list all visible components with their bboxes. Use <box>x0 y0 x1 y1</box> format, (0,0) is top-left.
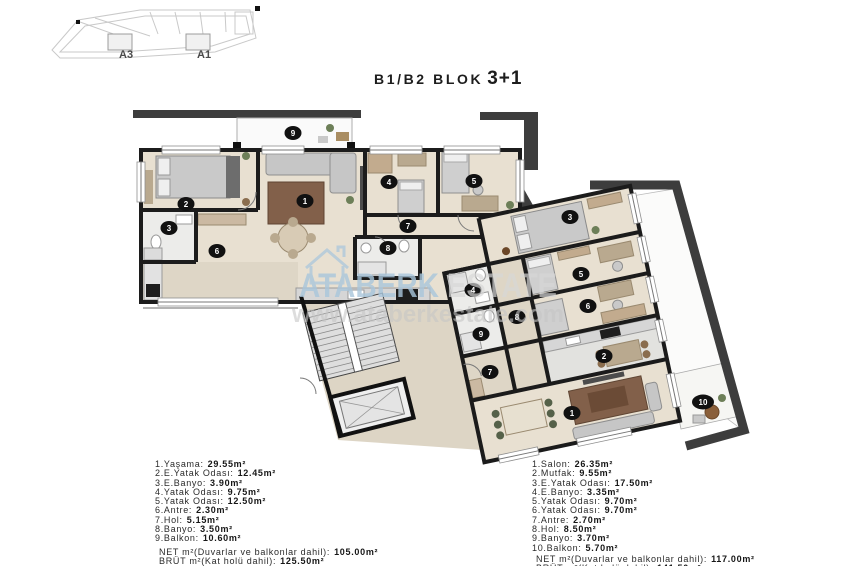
svg-text:6: 6 <box>215 247 220 256</box>
stair-door-arc <box>300 378 316 394</box>
svg-text:5: 5 <box>472 177 477 186</box>
room-label: 10.Balkon: <box>532 543 582 553</box>
badge-left-4: 4 <box>381 175 398 189</box>
svg-text:1: 1 <box>570 409 575 418</box>
svg-text:7: 7 <box>488 368 493 377</box>
badge-left-2: 2 <box>178 197 195 211</box>
left-hall-floor <box>143 262 298 302</box>
badge-left-7: 7 <box>400 219 417 233</box>
brut-value: 125.50m² <box>280 556 324 566</box>
left-room2-furniture <box>144 152 250 206</box>
brut-label: BRÜT m²(Kat holü dahil): <box>159 556 276 566</box>
svg-text:2: 2 <box>184 200 189 209</box>
room-area: 5.70m² <box>586 543 619 553</box>
badge-right-2: 2 <box>596 349 613 363</box>
net-value: 117.00m² <box>711 554 755 564</box>
net-value: 105.00m² <box>334 547 378 557</box>
badge-left-8: 8 <box>380 241 397 255</box>
site-label-a3: A3 <box>119 49 133 61</box>
badge-left-9: 9 <box>285 126 302 140</box>
svg-text:9: 9 <box>291 129 296 138</box>
site-marker-dot-2 <box>255 6 260 11</box>
room-area: 12.50m² <box>228 496 266 506</box>
watermark-brand-primary: ATABERK <box>299 267 439 305</box>
svg-text:4: 4 <box>387 178 392 187</box>
site-label-a1: A1 <box>197 49 211 61</box>
room-area: 12.45m² <box>238 468 276 478</box>
svg-text:3: 3 <box>568 213 573 222</box>
plan-title-block: B1/B2 BLOK <box>374 71 483 87</box>
svg-text:2: 2 <box>602 352 607 361</box>
legend-left-unit: 1.Yaşama:29.55m² 2.E.Yatak Odası:12.45m²… <box>155 460 485 566</box>
badge-right-1: 1 <box>564 406 581 420</box>
badge-right-3: 3 <box>562 210 579 224</box>
plan-title-type: 3+1 <box>487 68 522 89</box>
badge-right-6: 6 <box>580 299 597 313</box>
svg-text:10: 10 <box>699 398 708 407</box>
badge-left-1: 1 <box>297 194 314 208</box>
svg-text:9: 9 <box>479 330 484 339</box>
room-area: 17.50m² <box>615 478 653 488</box>
badge-left-3: 3 <box>161 221 178 235</box>
watermark-brand-secondary: ESTATE <box>447 267 557 305</box>
svg-text:1: 1 <box>303 197 308 206</box>
room-area: 2.30m² <box>196 505 229 515</box>
left-antre-closet <box>198 214 246 225</box>
legend-right-unit: 1.Salon:26.35m² 2.Mutfak:9.55m² 3.E.Yata… <box>532 460 850 566</box>
badge-right-10: 10 <box>692 395 714 410</box>
legend-item: 9.Balkon:10.60m² <box>155 534 485 543</box>
svg-text:5: 5 <box>579 270 584 279</box>
badge-left-5: 5 <box>466 174 483 188</box>
site-plan-sketch <box>52 6 260 58</box>
badge-right-9: 9 <box>473 327 490 341</box>
svg-text:7: 7 <box>406 222 411 231</box>
svg-text:6: 6 <box>586 302 591 311</box>
room-label: 9.Balkon: <box>155 533 199 543</box>
room-area: 10.60m² <box>203 533 241 543</box>
room-area: 9.70m² <box>605 505 638 515</box>
legend-brut-total: BRÜT m²(Kat holü dahil):125.50m² <box>155 557 485 566</box>
floorplan-page: A3 A1 <box>0 0 850 566</box>
badge-left-6: 6 <box>209 244 226 258</box>
legend-item: 10.Balkon:5.70m² <box>532 544 850 553</box>
badge-right-5: 5 <box>573 267 590 281</box>
room-area: 3.70m² <box>577 533 610 543</box>
plan-title: B1/B2 BLOK3+1 <box>374 68 522 90</box>
svg-text:3: 3 <box>167 224 172 233</box>
badge-right-7: 7 <box>482 365 499 379</box>
svg-text:8: 8 <box>386 244 391 253</box>
watermark-url: www.ataberkestate.com <box>291 301 564 328</box>
site-marker-dot <box>76 20 80 24</box>
